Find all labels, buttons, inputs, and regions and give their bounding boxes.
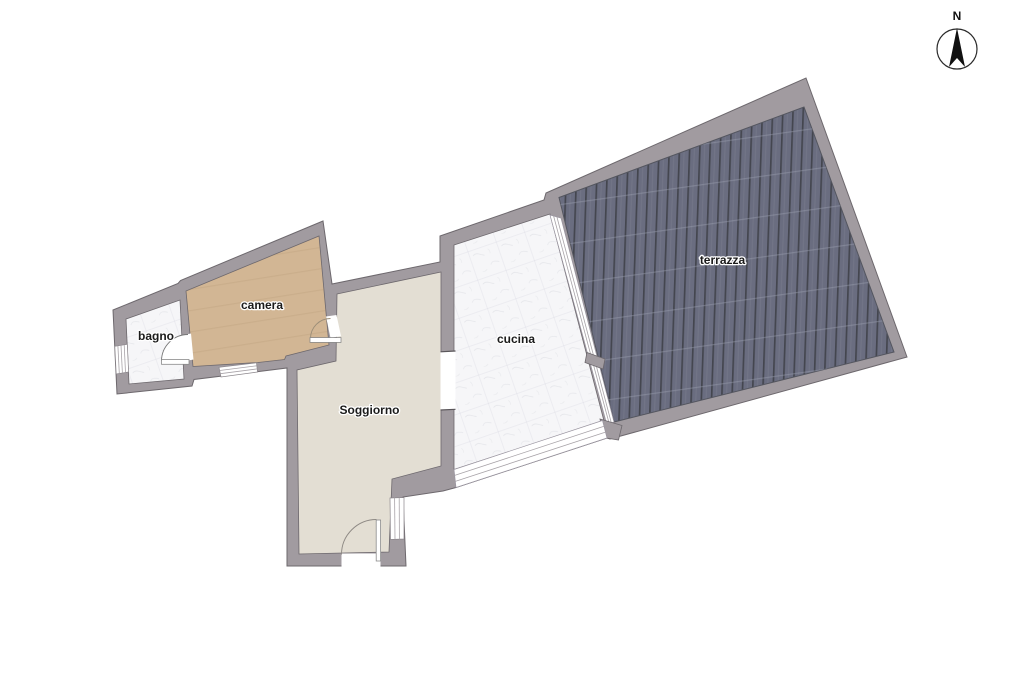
svg-text:N: N [953,9,962,23]
svg-text:bagno: bagno [138,329,174,343]
svg-text:camera: camera [241,298,283,312]
svg-text:cucina: cucina [497,332,535,346]
svg-text:Soggiorno: Soggiorno [340,403,400,417]
svg-text:terrazza: terrazza [700,253,746,267]
